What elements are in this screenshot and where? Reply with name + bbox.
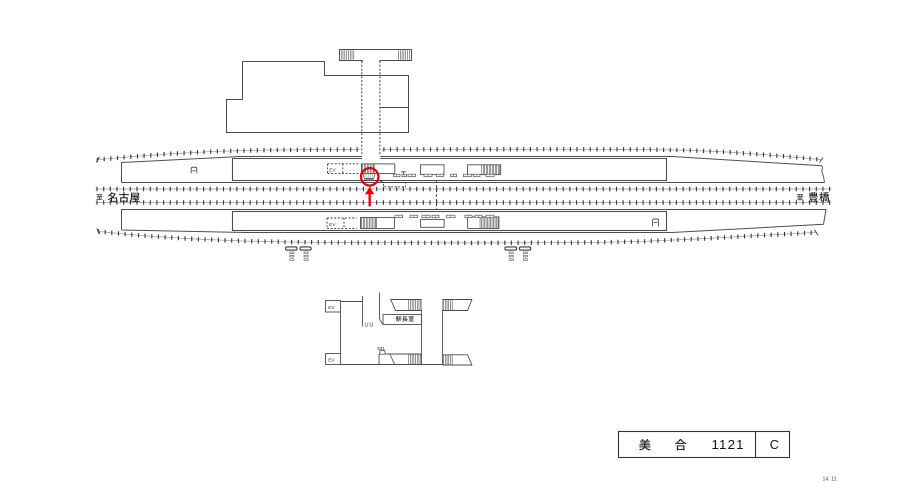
svg-text:14. 11: 14. 11	[823, 477, 837, 483]
svg-text:EV: EV	[329, 222, 336, 228]
svg-text:UU: UU	[365, 323, 375, 329]
svg-text:531: 531	[377, 346, 385, 351]
svg-text:EV: EV	[328, 358, 335, 364]
svg-text:1121: 1121	[712, 437, 745, 452]
svg-text:C: C	[770, 438, 779, 452]
svg-text:EV: EV	[329, 167, 336, 173]
svg-text:EV: EV	[328, 305, 335, 311]
